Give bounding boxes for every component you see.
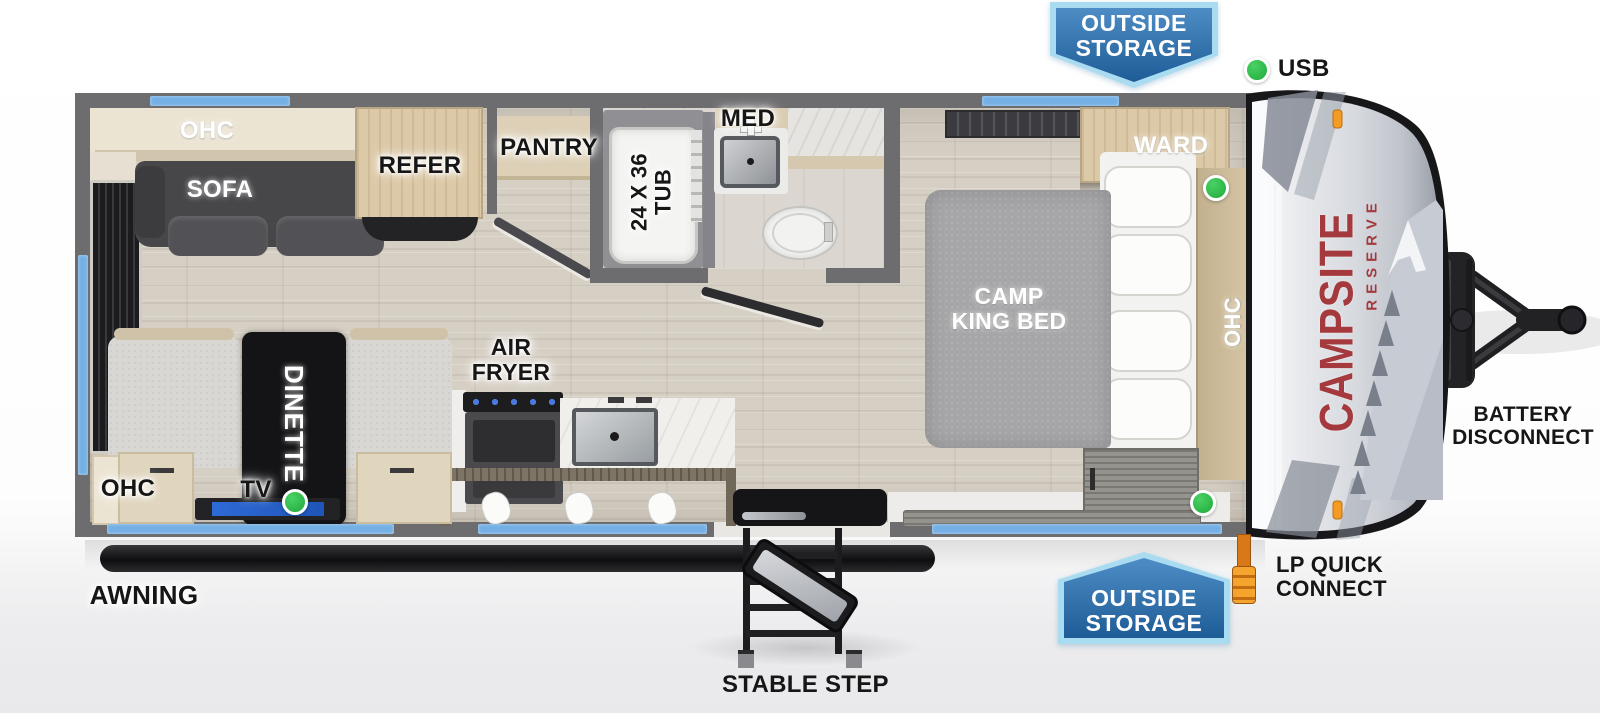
- bench-latch: [390, 468, 414, 473]
- kitchen-faucet: [636, 397, 652, 403]
- entry-door-mat: [733, 489, 887, 526]
- step-foot: [738, 650, 754, 668]
- ward-label: WARD: [1134, 133, 1209, 159]
- pantry-label: PANTRY: [500, 135, 598, 161]
- bath-counter-ledge: [788, 156, 884, 169]
- open-shelf-top: [440, 468, 736, 481]
- window: [150, 96, 290, 106]
- stove-burners: [468, 396, 558, 408]
- front-cap-and-hitch: [1240, 80, 1600, 560]
- step-rung: [746, 630, 838, 637]
- door-threshold: [742, 512, 806, 520]
- rv-floorplan-diagram: CAMPSITE RESERVE OUTSIDE STORAGE OUTSIDE…: [0, 0, 1600, 713]
- usb-label: USB: [1278, 56, 1330, 82]
- window: [932, 524, 1222, 534]
- refer-label: REFER: [379, 153, 462, 179]
- dinette-cushion-cap: [114, 328, 234, 340]
- kitchen-sink-drain: [610, 432, 619, 441]
- shower-shelves: [691, 130, 702, 222]
- usb-indicator: [1190, 490, 1216, 516]
- outside-storage-badge-top: OUTSIDE STORAGE: [1050, 2, 1218, 88]
- dinette-cushion-left: [108, 336, 240, 468]
- toilet-seat: [772, 213, 828, 253]
- sofa-cushion: [168, 216, 268, 256]
- dinette-cushion-right: [344, 336, 452, 468]
- lp-pipe: [1237, 534, 1251, 570]
- brand-name: CAMPSITE: [1309, 212, 1364, 433]
- dinette-cushion-cap: [350, 328, 448, 340]
- bench-latch: [150, 468, 174, 473]
- oven-window: [473, 420, 555, 462]
- window: [982, 96, 1119, 106]
- sink-drain: [747, 158, 754, 165]
- outside-storage-label: STORAGE: [1086, 610, 1203, 636]
- pillows: [1104, 310, 1192, 444]
- ohc-label-rear: OHC: [180, 118, 234, 144]
- sofa-label: SOFA: [187, 177, 254, 203]
- kitchen-faucet: [608, 397, 624, 403]
- dresser-handle: [1090, 468, 1095, 490]
- bath-counter-marble: [788, 108, 884, 160]
- outside-storage-badge-bottom: OUTSIDE STORAGE: [1058, 552, 1230, 644]
- stable-step-label: STABLE STEP: [722, 672, 889, 698]
- outside-storage-label: OUTSIDE: [1091, 585, 1197, 611]
- brand-subname: RESERVE: [1364, 197, 1381, 310]
- window: [78, 255, 88, 475]
- ohc-label-dinette: OHC: [101, 476, 155, 502]
- pillows: [1104, 166, 1192, 300]
- step-foot: [846, 650, 862, 668]
- awning-label: AWNING: [90, 581, 199, 609]
- outside-storage-label: STORAGE: [1076, 35, 1193, 61]
- refrigerator-vent: [362, 217, 478, 241]
- med-label: MED: [721, 106, 775, 132]
- camp-king-bed-label: CAMPKING BED: [952, 284, 1067, 334]
- usb-legend-dot: [1244, 57, 1270, 83]
- dinette-bench-right: [356, 452, 452, 524]
- clearance-light: [1333, 501, 1342, 519]
- lp-connector: [1232, 566, 1256, 604]
- window: [478, 524, 707, 534]
- lp-quick-connect-label: LP QUICKCONNECT: [1276, 553, 1387, 601]
- dinette-label: DINETTE: [280, 365, 308, 483]
- sofa-armrest: [135, 166, 165, 238]
- tv-label: TV: [240, 477, 271, 503]
- outside-storage-label: OUTSIDE: [1081, 10, 1187, 36]
- air-fryer-label: AIRFRYER: [472, 335, 551, 385]
- usb-indicator: [1203, 175, 1229, 201]
- clearance-light: [1333, 110, 1342, 128]
- bathroom-wall-bottom: [826, 268, 900, 283]
- pantry-wall: [487, 108, 497, 214]
- window: [107, 524, 394, 534]
- usb-indicator: [282, 489, 308, 515]
- bathroom-wall-right: [884, 108, 900, 283]
- tub-label: 24 X 36TUB: [627, 153, 675, 231]
- toilet-hinge: [824, 222, 833, 242]
- bathroom-wall-bottom: [590, 268, 708, 283]
- bed-foot-dresser: [1083, 448, 1199, 512]
